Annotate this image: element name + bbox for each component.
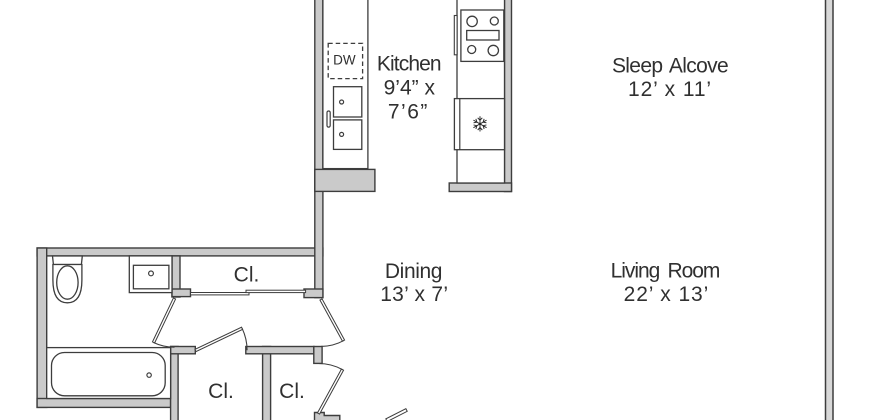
svg-text:Cl.: Cl.	[234, 264, 260, 287]
svg-text:Cl.: Cl.	[279, 380, 305, 403]
svg-text:Dining: Dining	[385, 260, 442, 283]
svg-text:7’6”: 7’6”	[388, 101, 429, 124]
svg-text:22’ x 13’: 22’ x 13’	[624, 283, 710, 306]
svg-text:13’ x 7’: 13’ x 7’	[380, 283, 448, 306]
svg-text:Cl.: Cl.	[208, 380, 234, 403]
svg-text:Sleep Alcove: Sleep Alcove	[612, 55, 728, 78]
svg-text:9’4” x: 9’4” x	[384, 77, 436, 100]
svg-text:Living Room: Living Room	[611, 260, 720, 283]
svg-text:12’ x 11’: 12’ x 11’	[628, 78, 712, 101]
svg-text:DW: DW	[333, 52, 356, 67]
svg-text:Kitchen: Kitchen	[377, 53, 441, 76]
